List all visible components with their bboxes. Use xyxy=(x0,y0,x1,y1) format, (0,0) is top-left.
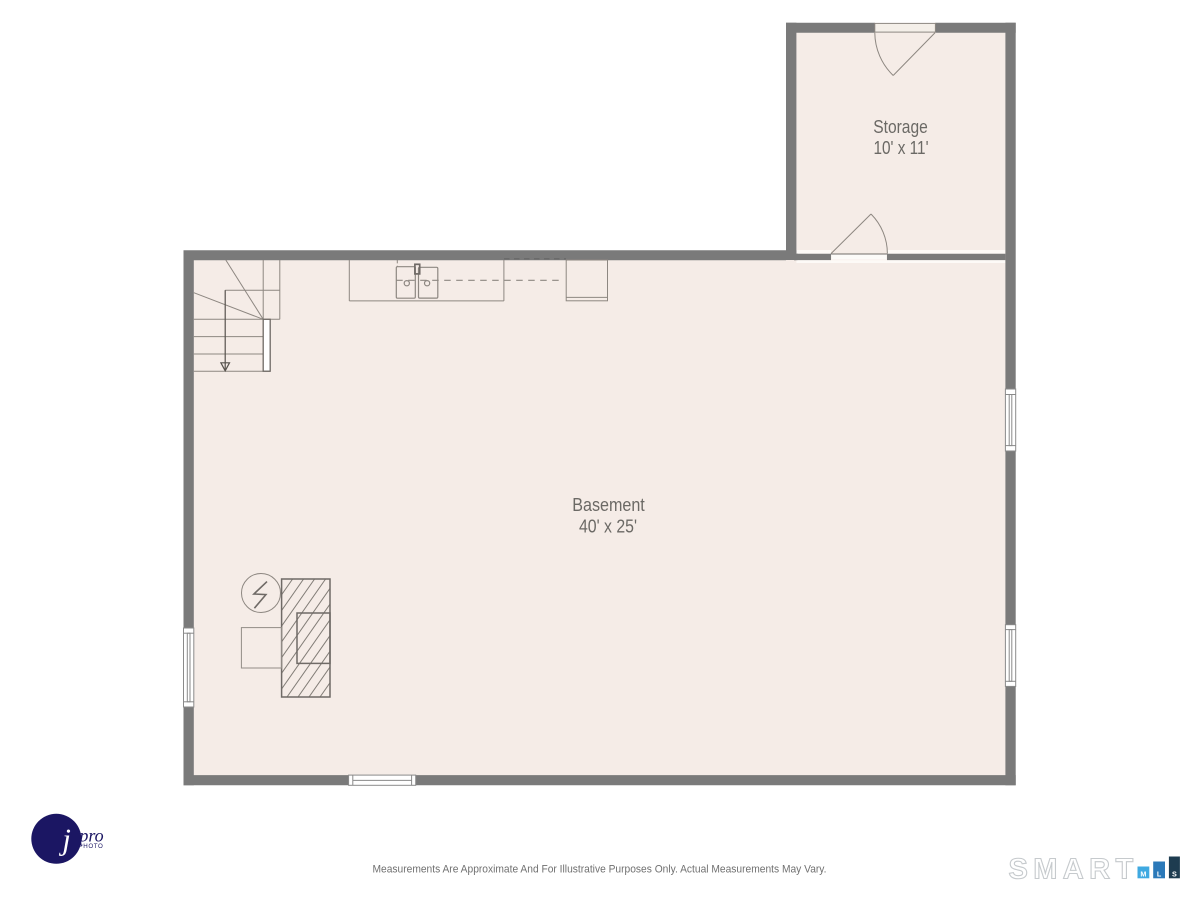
svg-text:Storage: Storage xyxy=(873,116,928,137)
svg-text:Basement: Basement xyxy=(572,494,645,515)
svg-text:L: L xyxy=(1157,869,1162,878)
svg-text:10' x 11': 10' x 11' xyxy=(874,137,929,158)
svg-text:M: M xyxy=(1140,869,1146,878)
svg-text:40' x 25': 40' x 25' xyxy=(579,516,637,537)
svg-text:SMART: SMART xyxy=(1009,854,1139,886)
svg-text:Measurements Are Approximate A: Measurements Are Approximate And For Ill… xyxy=(373,863,827,875)
svg-text:S: S xyxy=(1172,869,1177,878)
svg-text:PHOTO: PHOTO xyxy=(79,843,104,850)
